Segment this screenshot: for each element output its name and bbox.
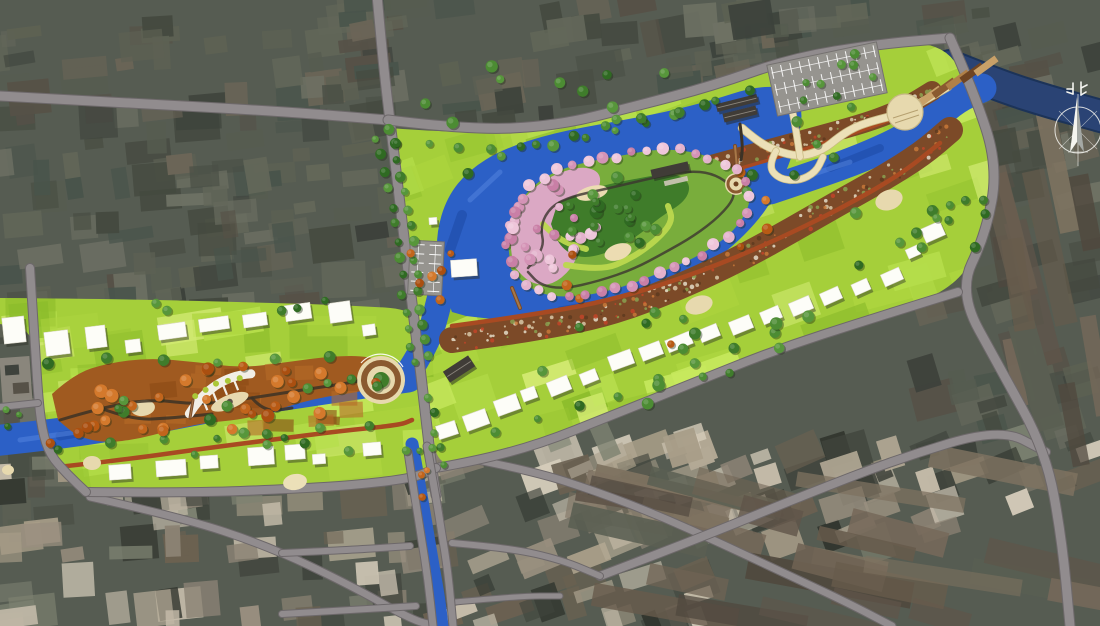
compass-north-indicator: 北	[1048, 80, 1100, 176]
building-footprint	[200, 455, 221, 472]
building-footprint	[328, 301, 355, 327]
building-footprint	[2, 316, 29, 347]
north-arrow-icon	[1048, 80, 1100, 176]
building-footprint	[247, 446, 276, 469]
site-plan-svg	[0, 0, 1100, 626]
building-footprint	[450, 259, 479, 281]
building-footprint	[242, 312, 270, 331]
building-footprint	[362, 442, 383, 460]
building-footprint	[85, 325, 110, 352]
building-footprint	[155, 459, 188, 480]
building-footprint	[109, 464, 134, 483]
master-plan-image: 北	[0, 0, 1100, 626]
building-footprint	[157, 322, 189, 344]
building-footprint	[44, 330, 73, 360]
